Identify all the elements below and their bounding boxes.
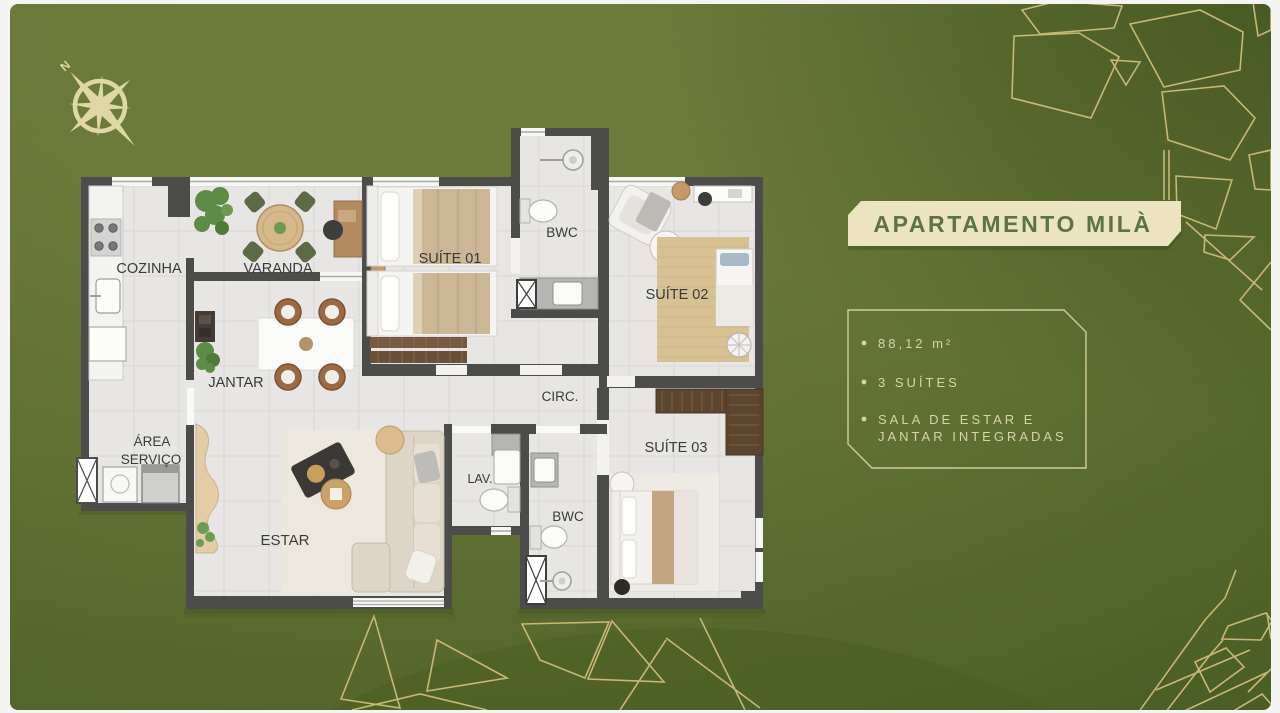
svg-text:88,12 m²: 88,12 m² bbox=[878, 336, 953, 351]
svg-text:JANTAR: JANTAR bbox=[208, 375, 263, 391]
svg-text:BWC: BWC bbox=[546, 225, 578, 240]
svg-text:APARTAMENTO MILÀ: APARTAMENTO MILÀ bbox=[873, 210, 1152, 237]
svg-text:ÁREA: ÁREA bbox=[134, 434, 171, 449]
svg-text:SUÍTE 02: SUÍTE 02 bbox=[646, 286, 709, 303]
svg-text:LAV.: LAV. bbox=[467, 472, 492, 486]
svg-text:ESTAR: ESTAR bbox=[261, 532, 310, 549]
svg-text:COZINHA: COZINHA bbox=[116, 261, 182, 277]
svg-text:JANTAR INTEGRADAS: JANTAR INTEGRADAS bbox=[878, 429, 1067, 444]
svg-text:3 SUÍTES: 3 SUÍTES bbox=[878, 375, 960, 390]
svg-text:SUÍTE 01: SUÍTE 01 bbox=[419, 250, 482, 267]
svg-text:BWC: BWC bbox=[552, 509, 584, 524]
svg-text:SUÍTE 03: SUÍTE 03 bbox=[645, 439, 708, 456]
svg-text:SERVIÇO: SERVIÇO bbox=[121, 452, 182, 467]
svg-text:VARANDA: VARANDA bbox=[243, 261, 312, 277]
svg-text:CIRC.: CIRC. bbox=[542, 389, 579, 404]
svg-text:SALA DE ESTAR E: SALA DE ESTAR E bbox=[878, 412, 1035, 427]
